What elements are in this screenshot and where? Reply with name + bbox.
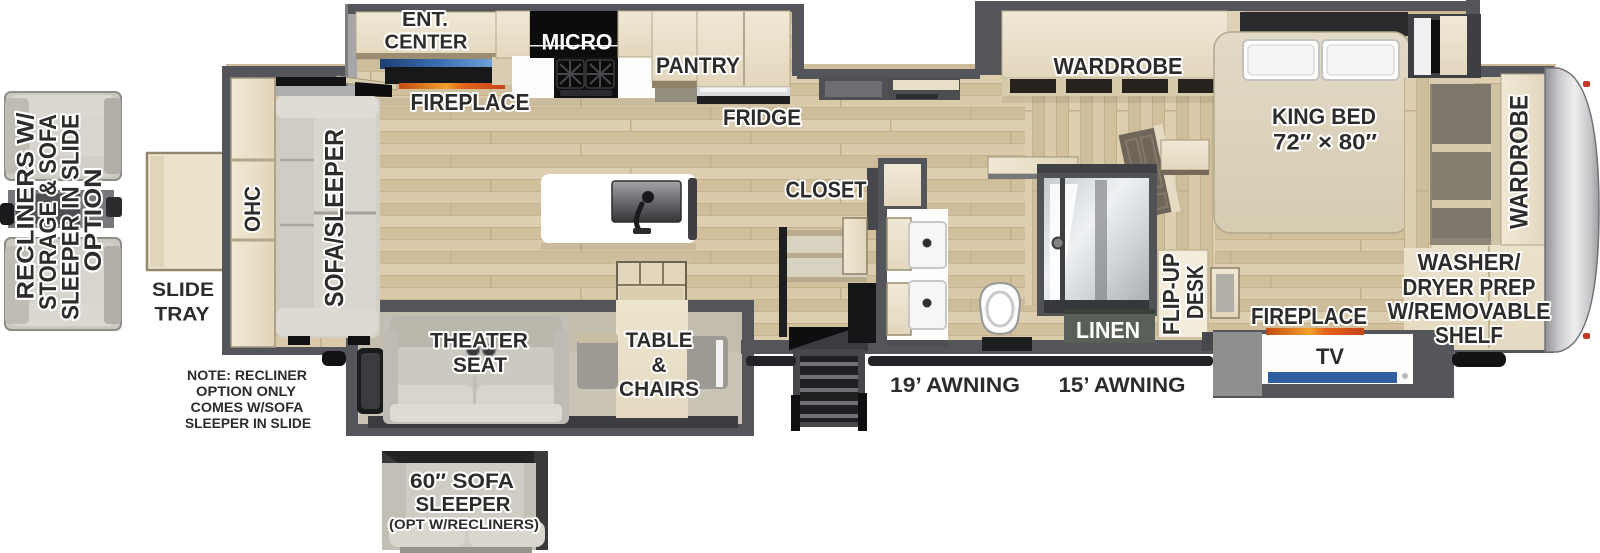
svg-text:LINEN: LINEN xyxy=(1076,317,1140,343)
svg-text:WASHER/: WASHER/ xyxy=(1418,249,1522,275)
svg-text:FIREPLACE: FIREPLACE xyxy=(1251,303,1367,329)
svg-text:OHC: OHC xyxy=(240,186,265,232)
svg-text:SHELF: SHELF xyxy=(1435,322,1503,348)
svg-text:FIREPLACE: FIREPLACE xyxy=(411,89,530,115)
svg-text:FRIDGE: FRIDGE xyxy=(723,105,801,130)
svg-text:SLEEPER: SLEEPER xyxy=(416,493,511,516)
svg-text:DRYER PREP: DRYER PREP xyxy=(1403,274,1536,300)
svg-text:19’ AWNING: 19’ AWNING xyxy=(890,374,1020,397)
svg-text:COMES W/SOFA: COMES W/SOFA xyxy=(191,399,304,415)
svg-text:15’ AWNING: 15’ AWNING xyxy=(1059,374,1186,397)
svg-text:CHAIRS: CHAIRS xyxy=(619,378,699,401)
svg-text:CLOSET: CLOSET xyxy=(786,177,868,203)
svg-text:CENTER: CENTER xyxy=(385,32,469,54)
svg-text:FLIP-UP: FLIP-UP xyxy=(1158,253,1184,335)
svg-text:(OPT W/RECLINERS): (OPT W/RECLINERS) xyxy=(389,516,539,532)
svg-text:SLIDE: SLIDE xyxy=(152,280,214,301)
svg-text:60″ SOFA: 60″ SOFA xyxy=(410,469,514,493)
svg-text:OPTION ONLY: OPTION ONLY xyxy=(196,383,297,399)
svg-text:SOFA/SLEEPER: SOFA/SLEEPER xyxy=(319,129,349,307)
svg-text:KING BED: KING BED xyxy=(1272,104,1376,129)
svg-text:WARDROBE: WARDROBE xyxy=(1506,95,1534,229)
svg-text:TV: TV xyxy=(1316,344,1344,369)
svg-text:TABLE: TABLE xyxy=(626,329,693,352)
svg-text:SLEEPER IN SLIDE: SLEEPER IN SLIDE xyxy=(185,415,311,431)
svg-text:SEAT: SEAT xyxy=(453,354,507,377)
svg-text:72″ × 80″: 72″ × 80″ xyxy=(1273,130,1377,155)
svg-text:WARDROBE: WARDROBE xyxy=(1054,53,1183,79)
svg-text:NOTE: RECLINER: NOTE: RECLINER xyxy=(187,367,307,383)
svg-text:OPTION: OPTION xyxy=(80,169,107,272)
svg-text:THEATER: THEATER xyxy=(430,330,528,353)
svg-text:ENT.: ENT. xyxy=(402,9,448,31)
svg-text:PANTRY: PANTRY xyxy=(656,53,740,78)
svg-text:W/REMOVABLE: W/REMOVABLE xyxy=(1388,298,1551,324)
svg-text:&: & xyxy=(651,354,666,377)
svg-text:DESK: DESK xyxy=(1182,265,1208,319)
svg-text:MICRO: MICRO xyxy=(542,30,613,55)
svg-text:TRAY: TRAY xyxy=(155,305,210,326)
